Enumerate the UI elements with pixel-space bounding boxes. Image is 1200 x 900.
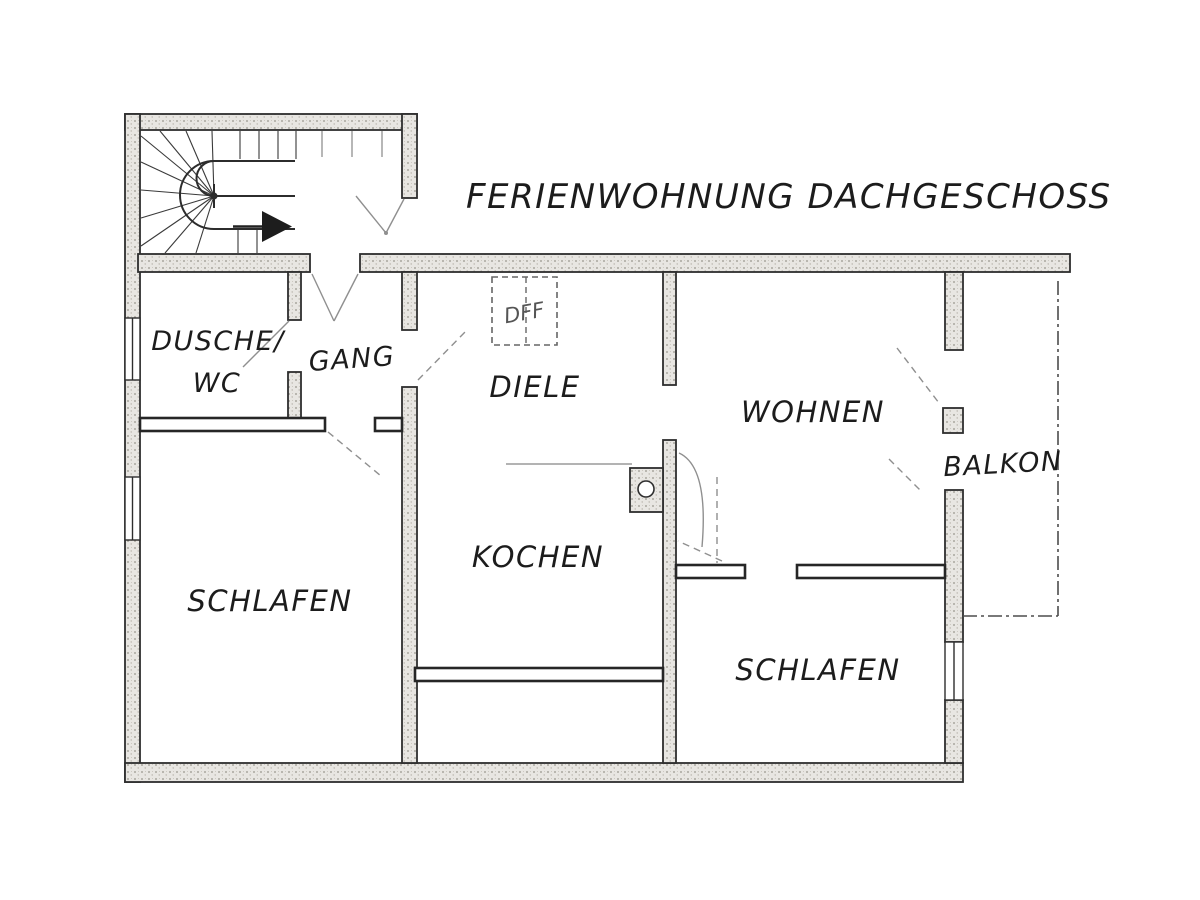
room-label-dusche-line1: DUSCHE/	[151, 326, 286, 357]
wall-outer-left	[125, 114, 140, 782]
door-swing-diele	[418, 331, 466, 380]
window-right-icon	[945, 642, 963, 700]
wall-outer-right-upper	[945, 272, 963, 350]
room-label-dusche-line2: WC	[193, 368, 242, 399]
wall-kochen-wohnen	[663, 440, 676, 763]
staircase	[141, 131, 382, 253]
wall-schlafen-west-top-b	[375, 418, 402, 431]
room-label-schlafen-west: SCHLAFEN	[187, 584, 352, 618]
door-swing-gang-b	[334, 274, 358, 321]
door-swing-schlafen-east	[678, 541, 722, 561]
wall-schlafen-east-top-a	[676, 565, 745, 578]
wall-outer-right-middle	[945, 490, 963, 642]
floor-plan-canvas: FERIENWOHNUNG DACHGESCHOSS	[0, 0, 1200, 900]
wall-outer-right-lower	[945, 700, 963, 763]
door-swing-entry-a	[386, 199, 404, 233]
wall-schlafen-east-top-b	[797, 565, 945, 578]
door-swings	[243, 196, 939, 563]
wall-stair-right	[402, 114, 417, 198]
room-label-diele: DIELE	[489, 370, 580, 404]
wall-schlafen-west-top-a	[140, 418, 325, 431]
wall-stair-top	[125, 114, 417, 130]
room-label-balkon: BALKON	[943, 446, 1064, 483]
wall-gang-diele-stub	[402, 272, 417, 330]
room-label-wohnen: WOHNEN	[741, 395, 885, 429]
stove-sink-unit-icon	[630, 468, 663, 512]
roof-window-dff: DFF	[492, 277, 557, 345]
floor-plan-page: FERIENWOHNUNG DACHGESCHOSS	[0, 0, 1200, 900]
wall-dusche-right-upper	[288, 272, 301, 320]
wall-right-door-pier	[943, 408, 963, 433]
wall-kochen-bottom	[415, 668, 663, 681]
stair-landing-lines	[322, 131, 382, 157]
wall-bottom	[125, 763, 963, 782]
dff-label: DFF	[502, 298, 547, 329]
room-label-kochen: KOCHEN	[472, 540, 604, 574]
room-label-schlafen-east: SCHLAFEN	[735, 653, 900, 687]
plan-title: FERIENWOHNUNG DACHGESCHOSS	[466, 177, 1112, 217]
door-swing-gang-a	[312, 274, 334, 321]
door-arc-wohnen	[679, 453, 703, 547]
door-swing-balkon-b	[889, 459, 920, 490]
wall-top-under-stairs	[138, 254, 310, 272]
door-swing-entry-b	[356, 196, 386, 233]
door-swing-schlafen-west	[328, 432, 381, 476]
window-left-lower-icon	[125, 477, 140, 540]
room-label-gang: GANG	[308, 341, 396, 378]
door-swing-balkon-a	[897, 348, 939, 403]
window-left-upper-icon	[125, 318, 140, 380]
wall-schlafen-kochen	[402, 387, 417, 763]
stair-direction-arrow-icon	[233, 211, 292, 242]
wall-top-main	[360, 254, 1070, 272]
wall-diele-wohnen-stub	[663, 272, 676, 385]
